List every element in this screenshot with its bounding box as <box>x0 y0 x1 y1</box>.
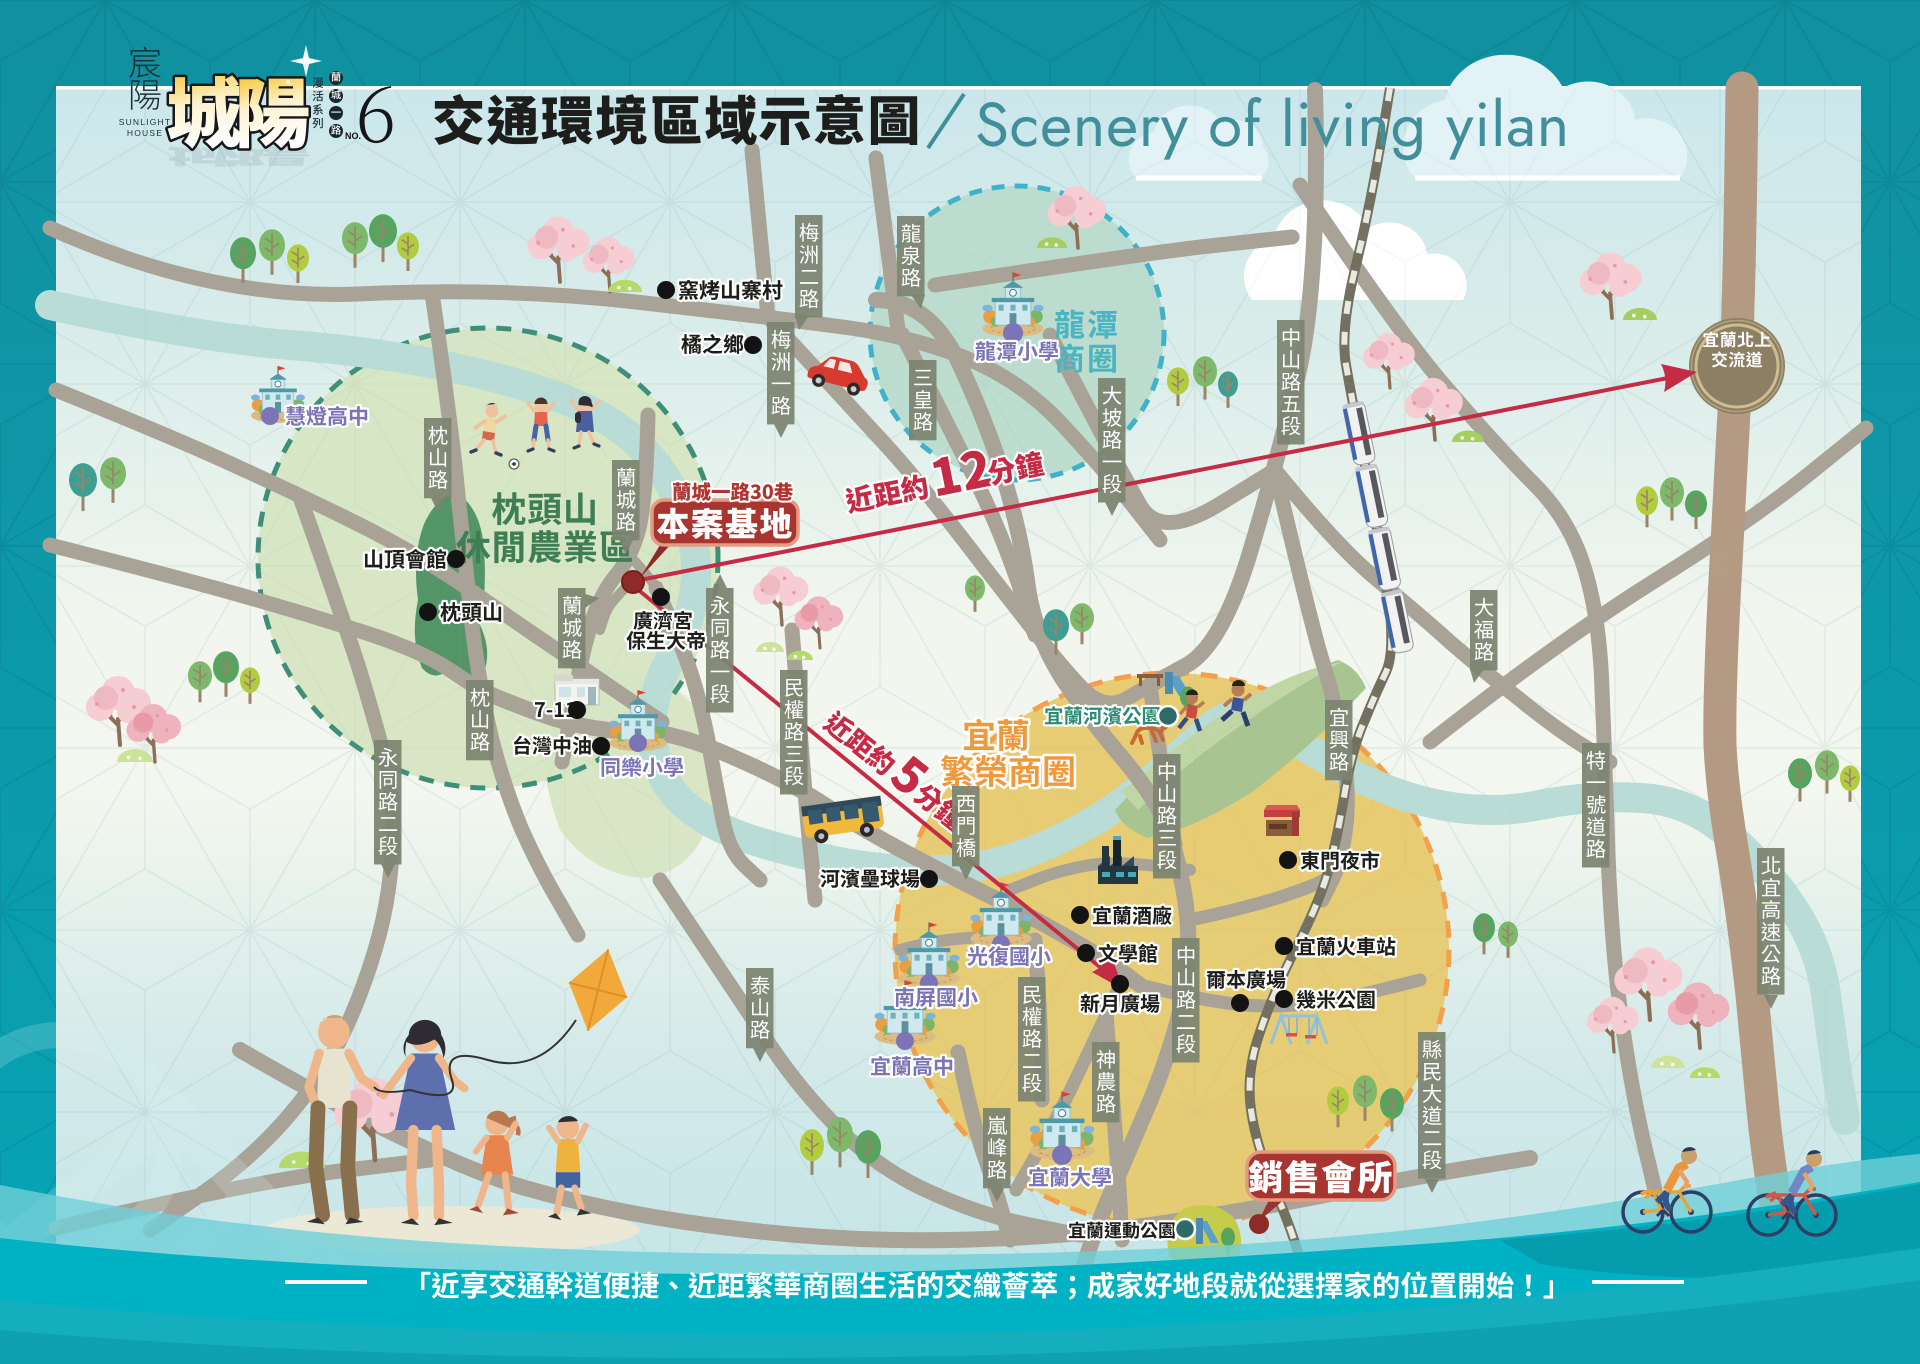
svg-text:SUNLIGHT: SUNLIGHT <box>119 117 172 127</box>
svg-text:HOUSE: HOUSE <box>127 128 163 138</box>
svg-text:NO.: NO. <box>345 131 361 141</box>
